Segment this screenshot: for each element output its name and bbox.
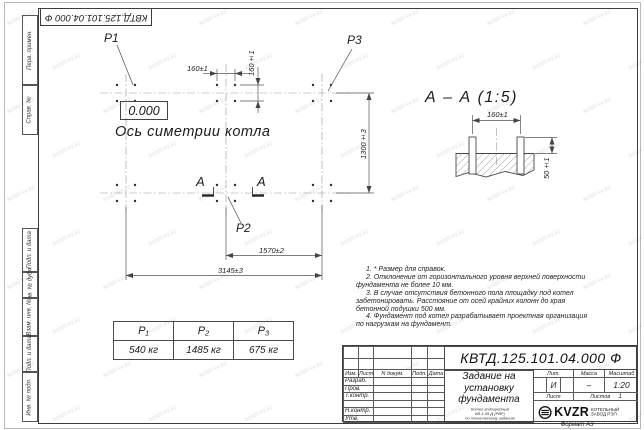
anchor-bolt-right — [517, 137, 524, 174]
section-cut-letter-left: А — [196, 174, 205, 189]
scale-value: 1:20 — [605, 378, 638, 393]
role-empty — [344, 400, 374, 408]
change-header-data: Дата — [428, 370, 445, 378]
dim-1570: 1570±2 — [259, 246, 284, 255]
change-table: Изм. Лист N докум. Подп. Дата Разраб. Пр… — [343, 346, 445, 423]
mass-value: – — [574, 378, 605, 393]
load-table-header-cell: P₂ — [174, 322, 234, 341]
dim-section-160: 160±1 — [487, 110, 508, 119]
load-table-value-cell: 1485 кг — [174, 341, 234, 360]
load-point-p1-label: P1 — [104, 31, 119, 45]
sheets-label: Листов — [590, 394, 610, 400]
title-block-right-grid: Лит. Масса Масштаб И – 1:20 Лист Листов … — [534, 370, 638, 423]
drawing-subtitle: Котел водогрейный КВ-1,45 Д (РВР) по тех… — [445, 407, 535, 421]
role-razrab: Разраб. — [344, 378, 374, 386]
format-label: Формат А3 — [552, 422, 602, 428]
role-tkontr: Т.контр. — [344, 393, 374, 401]
elevation-value: 0.000 — [128, 104, 159, 118]
drawing-title-cell: Задание на установку фундамента Котел во… — [444, 370, 534, 423]
section-title: А – А (1:5) — [425, 89, 518, 107]
dim-160-horizontal: 160±1 — [187, 64, 208, 73]
brand-name: KVZR — [554, 405, 589, 419]
change-header-izm: Изм. — [344, 370, 359, 378]
change-header-podp: Подп. — [412, 370, 428, 378]
section-cut-marks — [202, 187, 264, 196]
drawing-title-line: фундамента — [445, 394, 533, 406]
load-table-header-cell: P₁ — [114, 322, 174, 341]
anchor-bolt-left — [469, 137, 476, 174]
dim-1300: 1300±3 — [359, 126, 368, 162]
note-item: 4. Фундамент под котел разрабатывает про… — [356, 313, 596, 329]
note-item: 1. * Размер для справок. — [356, 266, 596, 274]
load-table-value-cell: 675 кг — [234, 341, 294, 360]
axis-of-symmetry-label: Ось симетрии котла — [115, 124, 270, 140]
lit-subcell-1 — [534, 378, 547, 393]
section-cut-letter-right: А — [257, 174, 266, 189]
notes-block: 1. * Размер для справок. 2. Отклонение о… — [356, 266, 596, 329]
drawing-title-line: Задание на — [445, 371, 533, 383]
scale-label: Масштаб — [605, 370, 638, 378]
lit-subcell-3 — [561, 378, 574, 393]
brand-logo: KVZR КОТЕЛЬНЫЙ ЗАВОД РЭП — [534, 401, 638, 423]
note-item: 2. Отклонение от горизонтального уровня … — [356, 274, 596, 290]
load-table-header-cell: P₃ — [234, 322, 294, 341]
role-utv: Утв. — [344, 415, 374, 423]
load-table-value-cell: 540 кг — [114, 341, 174, 360]
change-header-list: Лист — [359, 370, 374, 378]
title-block: Изм. Лист N докум. Подп. Дата Разраб. Пр… — [342, 345, 637, 422]
doc-number: КВТД.125.101.04.000 Ф — [444, 346, 638, 370]
note-item: 3. В случае отсутствия бетонного пола пл… — [356, 290, 596, 314]
brand-org-line: ЗАВОД РЭП — [591, 412, 619, 417]
drawing-subtitle-line: Котел водогрейный — [445, 407, 535, 412]
drawing-subtitle-line: по техническому заданию — [445, 416, 535, 421]
brand-org: КОТЕЛЬНЫЙ ЗАВОД РЭП — [591, 407, 619, 417]
brand-emblem-icon — [538, 404, 552, 421]
sheet-label: Лист — [534, 393, 574, 401]
mass-label: Масса — [574, 370, 605, 378]
sheets-cell: Листов 1 — [574, 393, 638, 401]
section-view-drawing — [456, 137, 534, 177]
role-prov: Пров. — [344, 385, 374, 393]
drawing-subtitle-line: КВ-1,45 Д (РВР) — [445, 411, 535, 416]
dim-3145: 3145±3 — [218, 266, 243, 275]
drawing-title-line: установку — [445, 383, 533, 395]
elevation-box: 0.000 — [120, 101, 168, 120]
load-point-p3-label: P3 — [347, 33, 362, 47]
sheets-value: 1 — [618, 393, 622, 400]
sheet: { "watermark": "kotel-kv.kz", "stamp_top… — [0, 0, 644, 430]
lit-value: И — [547, 378, 560, 393]
change-header-docnum: N докум. — [374, 370, 412, 378]
lit-label: Лит. — [534, 370, 574, 378]
dim-section-50: 50±1 — [542, 155, 551, 181]
dim-160-vertical: 160±1 — [247, 47, 256, 79]
load-table: P₁ P₂ P₃ 540 кг 1485 кг 675 кг — [113, 321, 294, 360]
role-nkontr: Н.контр. — [344, 408, 374, 416]
load-point-p2-label: P2 — [236, 221, 251, 235]
centerlines — [100, 64, 497, 216]
